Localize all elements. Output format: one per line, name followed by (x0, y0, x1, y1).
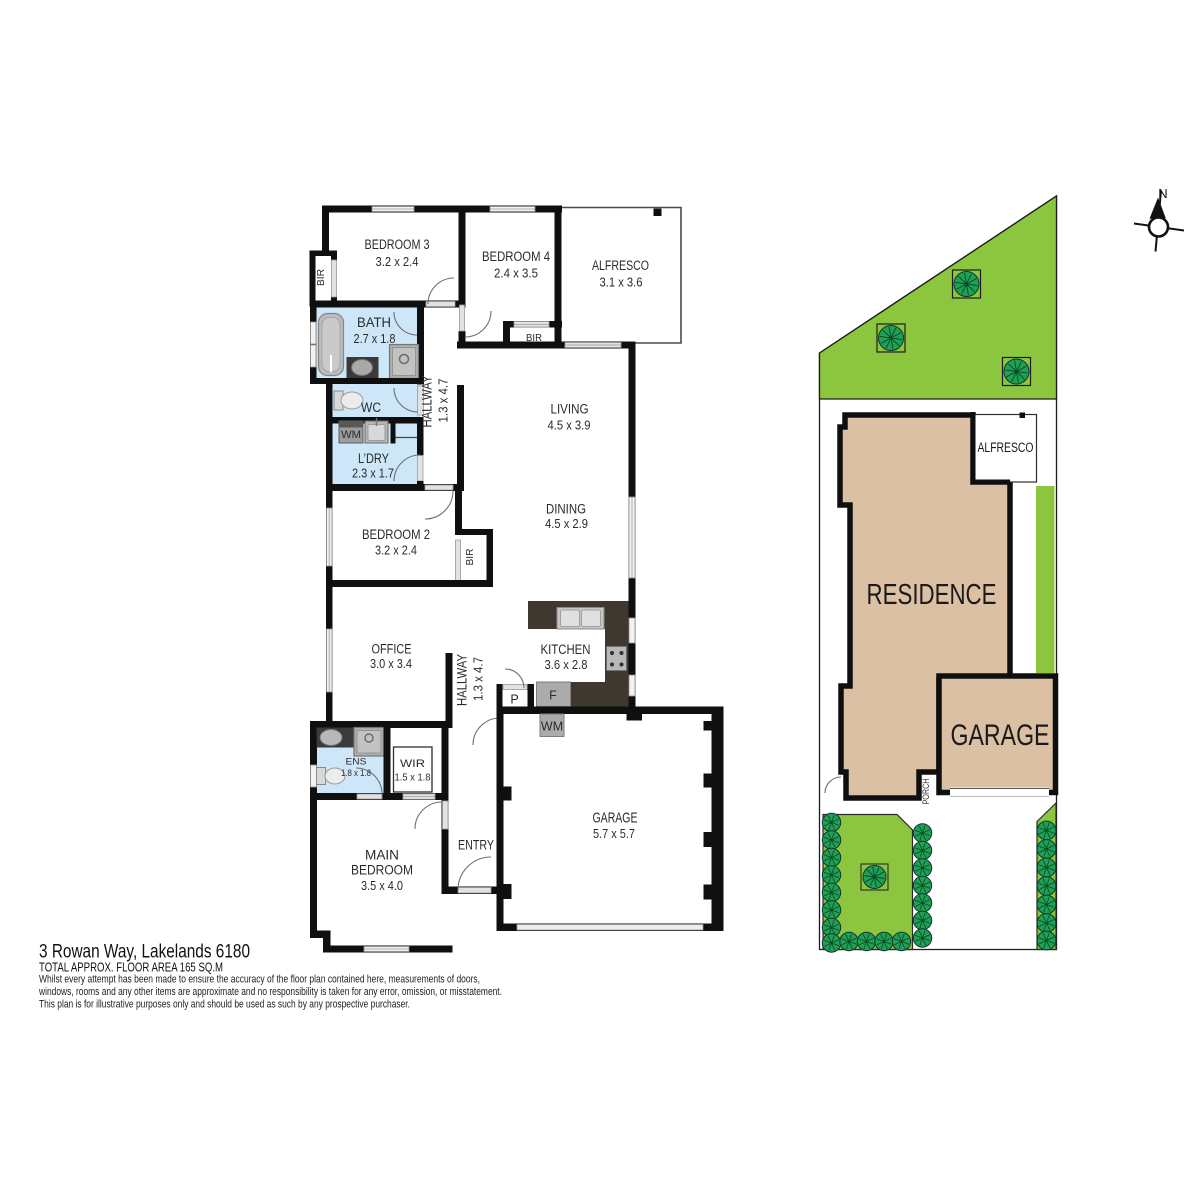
svg-text:3.0 x 3.4: 3.0 x 3.4 (370, 656, 412, 671)
svg-text:ALFRESCO: ALFRESCO (978, 440, 1034, 455)
svg-text:OFFICE: OFFICE (372, 642, 412, 657)
svg-text:1.3 x 4.7: 1.3 x 4.7 (471, 657, 486, 701)
svg-text:ENTRY: ENTRY (458, 838, 494, 853)
svg-text:1.5 x 1.8: 1.5 x 1.8 (395, 772, 431, 784)
svg-text:TOTAL APPROX. FLOOR AREA 165 S: TOTAL APPROX. FLOOR AREA 165 SQ.M (39, 960, 223, 975)
svg-text:BEDROOM 2: BEDROOM 2 (362, 527, 430, 542)
svg-text:4.5 x 2.9: 4.5 x 2.9 (545, 516, 588, 531)
svg-text:BEDROOM 3: BEDROOM 3 (365, 237, 430, 252)
svg-text:1.8 x 1.8: 1.8 x 1.8 (341, 768, 371, 778)
svg-text:4.5 x 3.9: 4.5 x 3.9 (548, 418, 591, 433)
svg-text:ENS: ENS (346, 757, 367, 768)
svg-text:RESIDENCE: RESIDENCE (867, 579, 997, 611)
svg-text:BIR: BIR (316, 269, 327, 286)
svg-text:MAIN: MAIN (365, 848, 399, 863)
svg-text:PORCH: PORCH (921, 778, 932, 804)
svg-text:This plan is for illustrative: This plan is for illustrative purposes o… (39, 999, 410, 1011)
svg-text:BEDROOM: BEDROOM (351, 863, 413, 878)
svg-text:2.3 x 1.7: 2.3 x 1.7 (352, 466, 394, 481)
svg-text:WIR: WIR (400, 758, 425, 770)
svg-text:ALFRESCO: ALFRESCO (592, 258, 649, 273)
svg-text:Whilst every attempt has been: Whilst every attempt has been made to en… (39, 974, 480, 986)
svg-text:2.7 x 1.8: 2.7 x 1.8 (354, 331, 396, 346)
svg-text:BATH: BATH (357, 315, 391, 330)
svg-text:HALLWAY: HALLWAY (455, 654, 470, 706)
svg-text:2.4 x 3.5: 2.4 x 3.5 (494, 266, 538, 281)
svg-text:3.2 x 2.4: 3.2 x 2.4 (375, 543, 417, 558)
svg-text:WC: WC (361, 400, 381, 415)
svg-text:BIR: BIR (465, 549, 476, 566)
svg-text:3.2 x 2.4: 3.2 x 2.4 (376, 254, 419, 269)
svg-text:3.5 x 4.0: 3.5 x 4.0 (361, 878, 403, 893)
svg-text:F: F (549, 689, 557, 703)
svg-text:1.3 x 4.7: 1.3 x 4.7 (436, 379, 451, 423)
svg-text:LIVING: LIVING (551, 402, 589, 417)
svg-text:WM: WM (541, 720, 563, 734)
svg-text:GARAGE: GARAGE (951, 719, 1050, 752)
svg-text:5.7 x 5.7: 5.7 x 5.7 (593, 826, 635, 841)
svg-text:windows, rooms and any other i: windows, rooms and any other items are a… (38, 986, 502, 998)
svg-text:HALLWAY: HALLWAY (420, 376, 435, 428)
svg-text:P: P (510, 693, 518, 707)
svg-text:3.6 x 2.8: 3.6 x 2.8 (545, 657, 588, 672)
svg-text:L’DRY: L’DRY (358, 451, 389, 466)
svg-text:GARAGE: GARAGE (593, 811, 638, 827)
svg-text:DINING: DINING (546, 502, 586, 517)
svg-text:BEDROOM 4: BEDROOM 4 (482, 249, 550, 264)
svg-text:3.1 x 3.6: 3.1 x 3.6 (600, 275, 643, 290)
svg-text:KITCHEN: KITCHEN (541, 642, 591, 657)
svg-text:WM: WM (341, 429, 361, 441)
svg-text:N: N (1158, 186, 1167, 201)
